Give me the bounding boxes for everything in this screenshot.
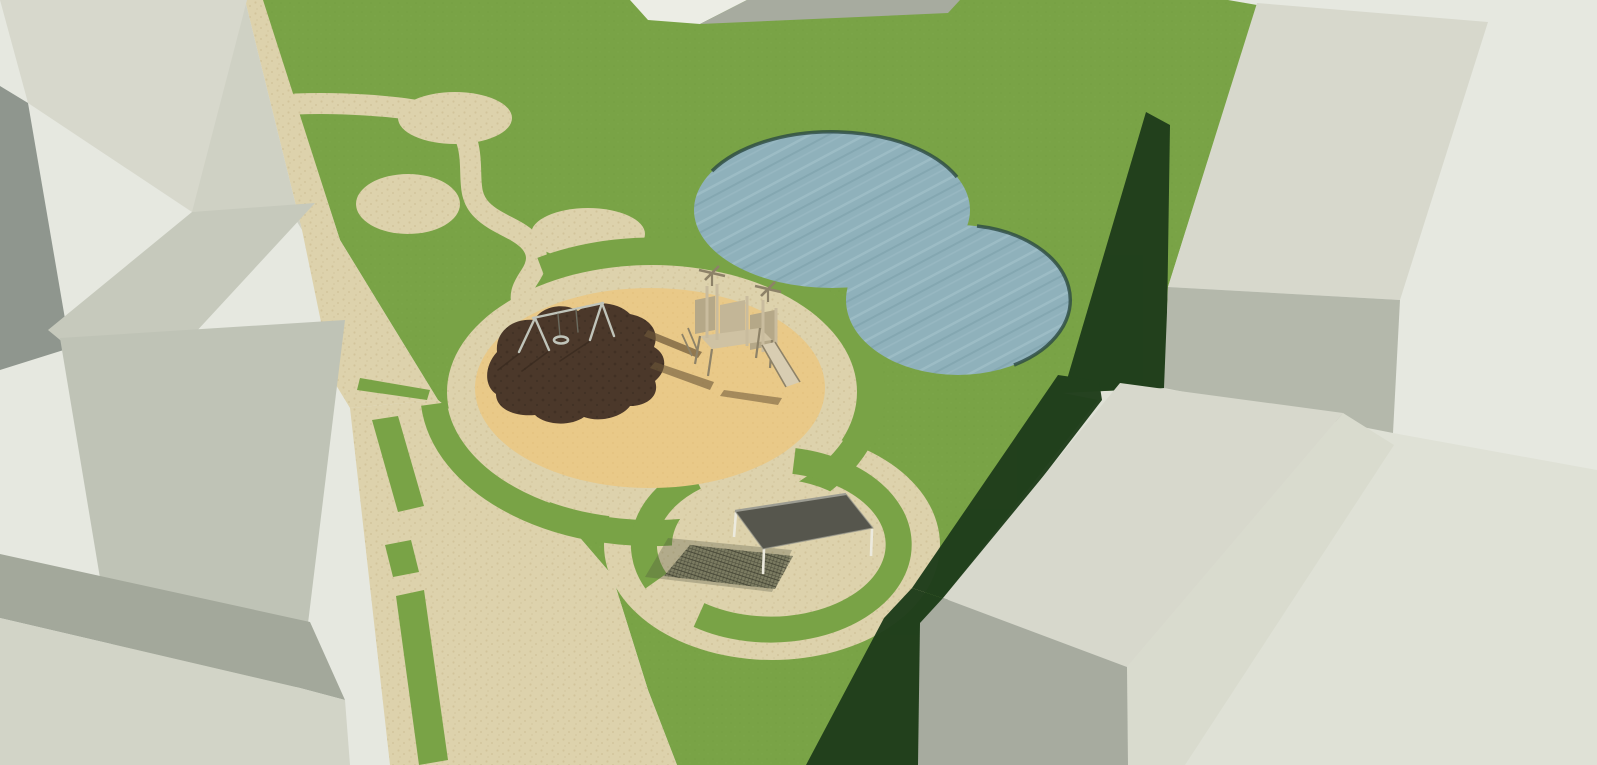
park-render-scene (0, 0, 1597, 765)
scene-canvas (0, 0, 1597, 765)
climb-panel-1 (695, 296, 715, 334)
path-pod-1 (398, 92, 512, 144)
path-pod-2 (356, 174, 460, 234)
